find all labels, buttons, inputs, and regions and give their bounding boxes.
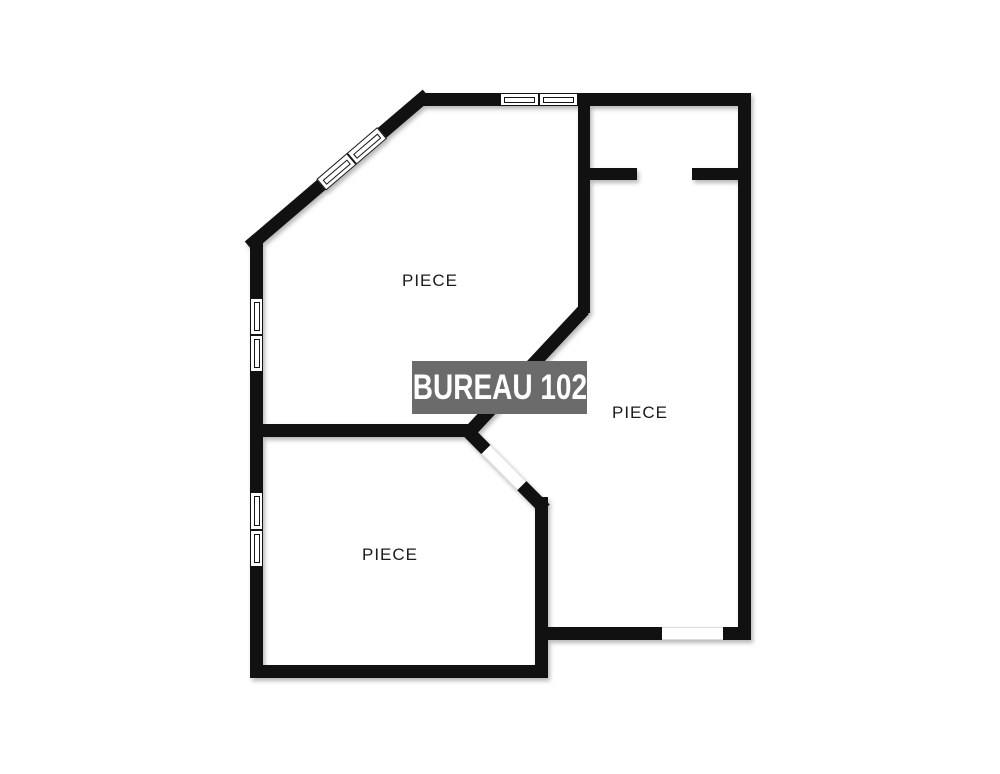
floor-plan-labels: PIECE PIECE PIECE BUREAU 102 — [0, 0, 1000, 774]
floor-plan: PIECE PIECE PIECE BUREAU 102 — [0, 0, 1000, 774]
bureau-banner: BUREAU 102 — [412, 361, 587, 414]
room-label-right: PIECE — [580, 403, 700, 423]
room-label-bottom-left: PIECE — [330, 545, 450, 565]
room-label-top-left: PIECE — [370, 271, 490, 291]
bureau-banner-label: BUREAU 102 — [412, 370, 586, 405]
